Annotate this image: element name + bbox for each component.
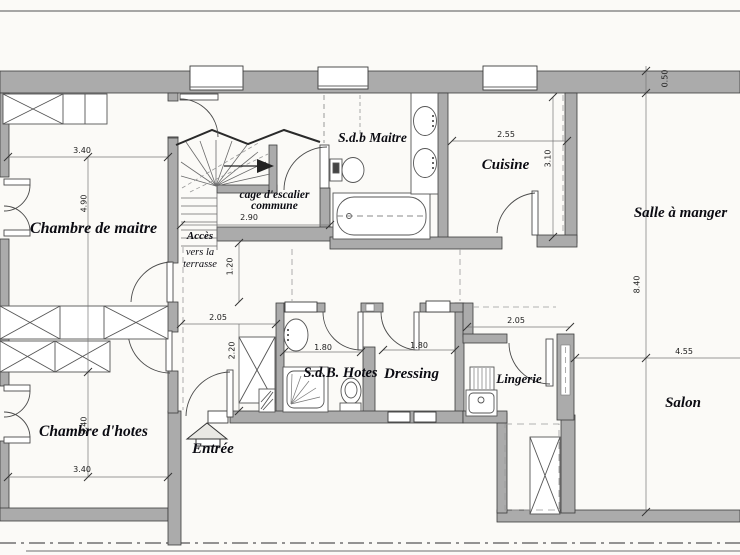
room-label-chambre-hotes: Chambre d'hotes xyxy=(16,424,171,440)
dim-wall-thickness: 0.50 xyxy=(661,63,670,95)
room-label-lingerie: Lingerie xyxy=(487,372,551,386)
dim-stair-width: 2.90 xyxy=(229,213,269,222)
stair-break-line xyxy=(176,130,320,145)
dim-cuisine-width: 2.55 xyxy=(486,130,526,139)
floor-plan-drawing xyxy=(0,0,740,555)
room-label-salon: Salon xyxy=(647,396,719,412)
window-block-top xyxy=(426,301,450,312)
wardrobe-guest-row2 xyxy=(0,341,110,372)
bathtub xyxy=(333,193,430,239)
dim-guest-depth: 3.40 xyxy=(80,410,89,442)
window-block-bottom-1 xyxy=(388,412,410,422)
window-block-bottom-2 xyxy=(414,412,436,422)
dim-cuisine-depth: 3.10 xyxy=(544,143,553,175)
wardrobe-closet xyxy=(530,437,560,514)
door-cuisine xyxy=(497,191,538,235)
wall-exterior-bottom-left xyxy=(0,508,168,521)
window-top-3 xyxy=(483,66,537,90)
mirror-panel xyxy=(259,389,275,412)
room-label-cuisine: Cuisine xyxy=(468,158,543,174)
room-label-dressing: Dressing xyxy=(374,367,449,383)
dim-master-depth: 4.90 xyxy=(80,188,89,220)
wall-porch-right xyxy=(497,413,507,513)
room-label-cage-escalier-line2: commune xyxy=(222,200,327,212)
window-sdb-top xyxy=(285,302,317,312)
room-label-salle-a-manger: Salle à manger xyxy=(623,206,738,222)
floor-plan-sheet: Chambre de maitre S.d.b Maitre cage d'es… xyxy=(0,0,740,555)
wall-cuisine-right xyxy=(565,93,577,243)
toilet-hotes xyxy=(340,378,361,411)
dim-hall-height: 2.20 xyxy=(228,335,237,367)
label-acces-line1: Accès xyxy=(170,231,230,243)
label-entree: Entrée xyxy=(177,442,249,458)
toilet-maitre xyxy=(330,158,364,183)
dim-salon-width: 4.55 xyxy=(664,347,704,356)
door-entry xyxy=(186,370,233,417)
wardrobe-master xyxy=(3,94,107,124)
label-acces-line3: terrasse xyxy=(170,259,230,270)
wall-closet-right xyxy=(561,415,575,513)
stair-direction-arrow xyxy=(224,159,274,173)
room-label-chambre-de-maitre: Chambre de maitre xyxy=(16,221,171,238)
wall-stair-bottom xyxy=(217,227,334,241)
dim-master-width: 3.40 xyxy=(62,146,102,155)
double-washbasin xyxy=(411,93,438,194)
door-bath-maitre xyxy=(284,145,329,190)
wall-exterior-top xyxy=(0,71,740,93)
wall-lingerie-top xyxy=(463,334,507,343)
dim-dining-depth: 8.40 xyxy=(633,269,642,301)
wardrobe-guest-row1 xyxy=(0,306,168,339)
room-label-sdb-maitre: S.d.b Maitre xyxy=(330,131,415,145)
door-master-bedroom xyxy=(131,262,173,302)
dim-hall-length: 2.05 xyxy=(198,313,238,322)
wall-bath-cuisine xyxy=(438,93,448,240)
dim-lingerie-width: 2.05 xyxy=(496,316,536,325)
window-top-1 xyxy=(190,66,243,90)
dim-dressing-width: 1.80 xyxy=(399,341,439,350)
dim-sdb-hotes-width: 1.80 xyxy=(303,343,343,352)
dim-guest-width: 3.40 xyxy=(62,465,102,474)
dim-hall-width: 1.20 xyxy=(226,251,235,283)
entry-threshold xyxy=(208,411,228,423)
label-acces-line2: vers la xyxy=(170,247,230,258)
